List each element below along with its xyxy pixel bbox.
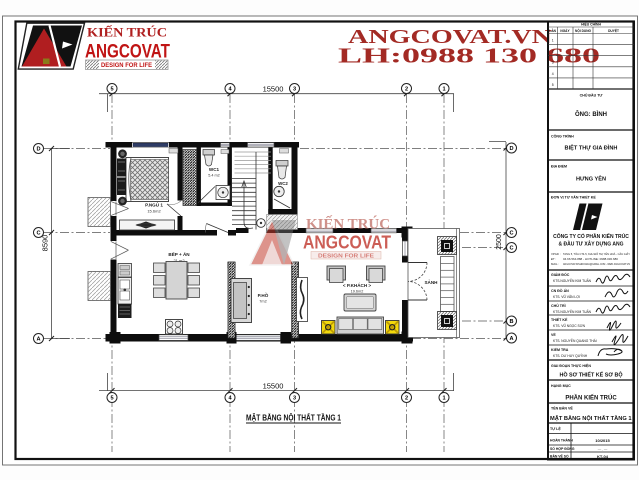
svg-text:WC1: WC1 <box>209 167 220 172</box>
svg-text:WC2: WC2 <box>278 181 288 186</box>
svg-text:8590: 8590 <box>41 235 50 252</box>
svg-text:TỰ LỆ: TỰ LỆ <box>550 426 561 431</box>
svg-text:KTS.NGUYỄN KIM TUẤN: KTS.NGUYỄN KIM TUẤN <box>553 278 592 283</box>
svg-text:5: 5 <box>110 396 113 402</box>
svg-text:HOÀN THÀNH: HOÀN THÀNH <box>550 438 573 443</box>
svg-text:BIỆT THỰ GIA ĐÌNH: BIỆT THỰ GIA ĐÌNH <box>565 144 618 152</box>
svg-text:1: 1 <box>552 39 554 43</box>
svg-text:KIẾN TRÚC: KIẾN TRÚC <box>306 216 390 233</box>
svg-text:04.66.564.888 - HOTLINE: 0988.: 04.66.564.888 - HOTLINE: 0988.030.680 <box>563 257 618 261</box>
svg-text:CÔNG TY CỔ PHẦN KIẾN TRÚC: CÔNG TY CỔ PHẦN KIẾN TRÚC <box>553 232 629 240</box>
svg-text:HỒ SƠ THIẾT KẾ SƠ BỘ: HỒ SƠ THIẾT KẾ SƠ BỘ <box>559 371 622 379</box>
svg-text:1: 1 <box>442 396 445 402</box>
svg-text:CÔNG TRÌNH: CÔNG TRÌNH <box>551 134 574 139</box>
svg-text:ÔNG: BÌNH: ÔNG: BÌNH <box>575 110 607 118</box>
svg-text:PHẦN KIẾN TRÚC: PHẦN KIẾN TRÚC <box>565 395 617 402</box>
svg-text:ANGCOVAT: ANGCOVAT <box>303 233 391 253</box>
svg-text:NỘI DUNG: NỘI DUNG <box>575 28 591 33</box>
svg-text:HẠNG MỤC: HẠNG MỤC <box>551 384 571 388</box>
svg-text:15500: 15500 <box>263 85 284 94</box>
svg-text:3: 3 <box>293 396 296 402</box>
svg-text:CN ĐỒ ÁN: CN ĐỒ ÁN <box>551 288 569 293</box>
svg-text:ĐỊA ĐIỂM: ĐỊA ĐIỂM <box>551 164 567 169</box>
svg-text:1: 1 <box>442 87 445 93</box>
svg-text:HƯNG YÊN: HƯNG YÊN <box>576 175 606 183</box>
svg-text:KIẾN TRÚC: KIẾN TRÚC <box>87 25 167 40</box>
svg-text:MẶT BẰNG NỘI THẤT TẦNG 1: MẶT BẰNG NỘI THẤT TẦNG 1 <box>246 412 341 423</box>
svg-text:MẶT BẰNG NỘI THẤT TẦNG 1: MẶT BẰNG NỘI THẤT TẦNG 1 <box>550 414 632 422</box>
svg-text:SỐ HỢP ĐỒNG: SỐ HỢP ĐỒNG <box>550 446 575 451</box>
svg-text:10/2015: 10/2015 <box>595 438 610 443</box>
svg-text:B: B <box>509 319 513 325</box>
svg-text:P.NGỦ 1: P.NGỦ 1 <box>145 202 163 208</box>
svg-text:2: 2 <box>405 396 408 402</box>
svg-text:HIỆU CHỈNH: HIỆU CHỈNH <box>581 22 601 27</box>
svg-text:MAIL :: MAIL : <box>551 262 559 266</box>
svg-text:C: C <box>509 231 513 237</box>
svg-text:3: 3 <box>552 61 554 65</box>
svg-text:BẢN VẼ SỐ: BẢN VẼ SỐ <box>550 454 569 459</box>
svg-text:5: 5 <box>552 83 554 87</box>
svg-text:KT-04: KT-04 <box>597 454 609 459</box>
svg-text:7m2: 7m2 <box>259 300 266 304</box>
svg-text:A: A <box>36 337 40 343</box>
svg-text:5.4 m2: 5.4 m2 <box>208 174 220 178</box>
svg-text:< P.KHÁCH >: < P.KHÁCH > <box>343 282 372 288</box>
svg-text:KIỂM TRA: KIỂM TRA <box>551 347 569 352</box>
svg-text:NGÀY: NGÀY <box>560 28 570 33</box>
svg-text:DESIGN FOR LIFE: DESIGN FOR LIFE <box>101 62 152 69</box>
svg-text:VPGD :: VPGD : <box>551 252 561 256</box>
svg-text:TÊN BẢN VẼ: TÊN BẢN VẼ <box>551 406 573 411</box>
svg-text:— . —: — . — <box>598 448 608 452</box>
svg-text:4: 4 <box>552 72 554 76</box>
svg-text:ANGCOVAT: ANGCOVAT <box>85 41 170 63</box>
svg-text:DESIGN FOR LIFE: DESIGN FOR LIFE <box>318 254 374 260</box>
svg-text:15500: 15500 <box>263 382 284 391</box>
svg-text:GIÁM ĐỐC: GIÁM ĐỐC <box>551 272 570 277</box>
svg-text:C: C <box>36 231 40 237</box>
svg-text:LẦN: LẦN <box>549 29 556 33</box>
svg-text:VỂ: VỂ <box>551 332 556 337</box>
svg-text:BẾP + ĂN: BẾP + ĂN <box>168 251 190 257</box>
svg-text:THIẾT KẾ: THIẾT KẾ <box>551 317 568 322</box>
svg-text:15.6m2: 15.6m2 <box>147 209 161 214</box>
svg-text:DUYỆT: DUYỆT <box>608 28 619 33</box>
svg-text:ANGCOVAT.KINHDOANH@GMAIL.COM -: ANGCOVAT.KINHDOANH@GMAIL.COM - WEB: ANGC… <box>563 262 630 266</box>
svg-text:KTS. VŨ NGỌC SƠN: KTS. VŨ NGỌC SƠN <box>553 323 586 328</box>
svg-text:ĐT :: ĐT : <box>551 257 556 261</box>
svg-text:KTS.NGUYỄN KIM TUẤN: KTS.NGUYỄN KIM TUẤN <box>553 309 592 314</box>
svg-text:3: 3 <box>293 87 296 93</box>
svg-text:& ĐẦU TƯ XÂY DỰNG ANG: & ĐẦU TƯ XÂY DỰNG ANG <box>559 241 624 248</box>
svg-text:CHỦ ĐẦU TƯ: CHỦ ĐẦU TƯ <box>580 93 603 98</box>
svg-text:CHỦ TRÌ: CHỦ TRÌ <box>551 303 566 308</box>
svg-text:D: D <box>36 147 40 153</box>
svg-text:TANG 5, TÒA CT4-5, KHU ĐÔ THỊ: TANG 5, TÒA CT4-5, KHU ĐÔ THỊ YÊN HOÀ - … <box>563 251 630 256</box>
svg-text:GIAI ĐOẠN THỰC HIỆN: GIAI ĐOẠN THỰC HIỆN <box>551 363 591 368</box>
svg-text:P.HỒ: P.HỒ <box>258 292 269 298</box>
svg-text:KTS. DƯ HUY QUỶNH: KTS. DƯ HUY QUỶNH <box>553 353 588 358</box>
svg-text:SẢNH: SẢNH <box>424 279 438 285</box>
svg-text:C: C <box>509 246 513 252</box>
svg-text:A: A <box>509 336 513 342</box>
svg-text:D: D <box>509 146 513 152</box>
svg-text:KTS. NGUYỄN QUANG THÁI: KTS. NGUYỄN QUANG THÁI <box>553 338 597 343</box>
svg-text:KTS. VŨ VĂN LỢI: KTS. VŨ VĂN LỢI <box>553 294 580 299</box>
svg-text:2: 2 <box>405 87 408 93</box>
svg-text:2500: 2500 <box>496 234 503 250</box>
svg-text:ĐƠN VỊ TƯ VẤN THIẾT KẾ: ĐƠN VỊ TƯ VẤN THIẾT KẾ <box>551 195 596 200</box>
svg-text:2: 2 <box>552 50 554 54</box>
svg-text:5: 5 <box>110 87 113 93</box>
svg-text:19.6m2: 19.6m2 <box>351 290 364 294</box>
